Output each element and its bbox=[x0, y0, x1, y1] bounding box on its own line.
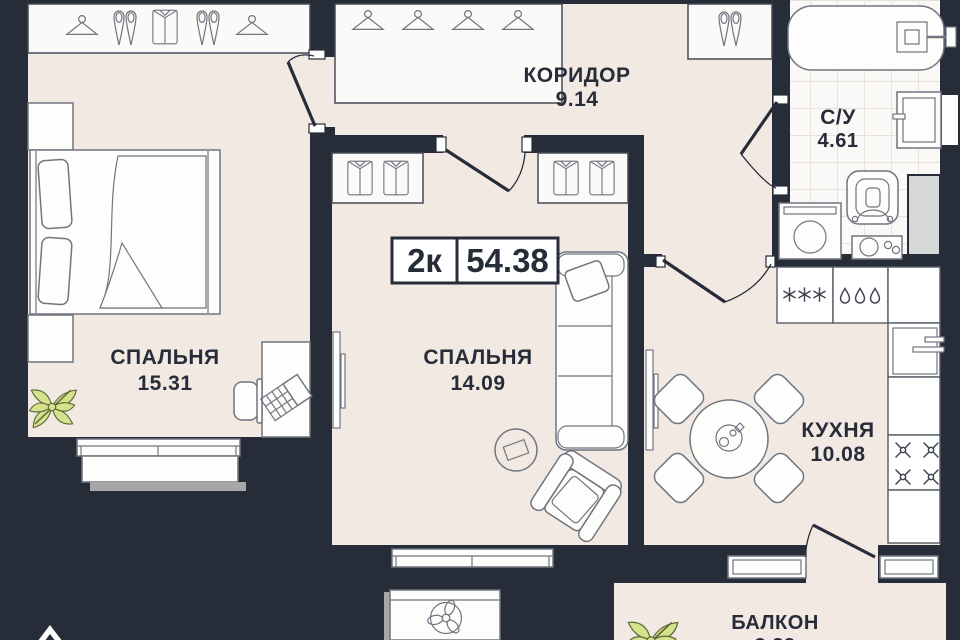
room-name-label: БАЛКОН bbox=[731, 612, 819, 634]
floor-plan: СПАЛЬНЯ 15.31 КОРИДОР 9.14 bbox=[0, 0, 960, 640]
entrance-door bbox=[893, 92, 941, 148]
counter bbox=[888, 267, 940, 323]
counter bbox=[888, 490, 940, 543]
room-area-label: 14.09 bbox=[450, 372, 505, 395]
double-bed bbox=[30, 150, 220, 314]
nightstand bbox=[28, 315, 73, 362]
badge-rooms-label: 2к bbox=[407, 242, 442, 279]
room-name-label: СПАЛЬНЯ bbox=[423, 346, 532, 369]
room-name-label: КУХНЯ bbox=[801, 419, 874, 442]
ac-unit bbox=[384, 590, 500, 640]
room-area-label: 3.83 bbox=[755, 635, 796, 640]
washing-machine bbox=[779, 203, 841, 259]
room-area-label: 4.61 bbox=[818, 130, 859, 152]
room-area-label: 15.31 bbox=[137, 372, 192, 395]
sofa bbox=[556, 252, 628, 450]
room-area-label: 9.14 bbox=[556, 88, 599, 111]
room-name-label: С/У bbox=[820, 106, 856, 129]
window bbox=[392, 549, 553, 567]
nightstand bbox=[28, 103, 73, 150]
counter bbox=[888, 377, 940, 435]
dining-table bbox=[690, 400, 768, 478]
room-name-label: КОРИДОР bbox=[523, 64, 630, 87]
unit-badge: 2к 54.38 bbox=[392, 238, 558, 283]
toilet bbox=[847, 171, 898, 224]
room-area-label: 10.08 bbox=[810, 443, 865, 466]
vent-shaft bbox=[908, 175, 940, 255]
window bbox=[77, 439, 246, 491]
room-name-label: СПАЛЬНЯ bbox=[110, 346, 219, 369]
badge-area-label: 54.38 bbox=[466, 242, 549, 279]
desk-chair bbox=[234, 379, 262, 423]
bathtub bbox=[788, 6, 956, 70]
wardrobe bbox=[332, 153, 423, 203]
shoe-cabinet bbox=[688, 4, 772, 59]
small-sink bbox=[852, 236, 902, 259]
floor-plan-canvas: СПАЛЬНЯ 15.31 КОРИДОР 9.14 bbox=[0, 0, 960, 640]
